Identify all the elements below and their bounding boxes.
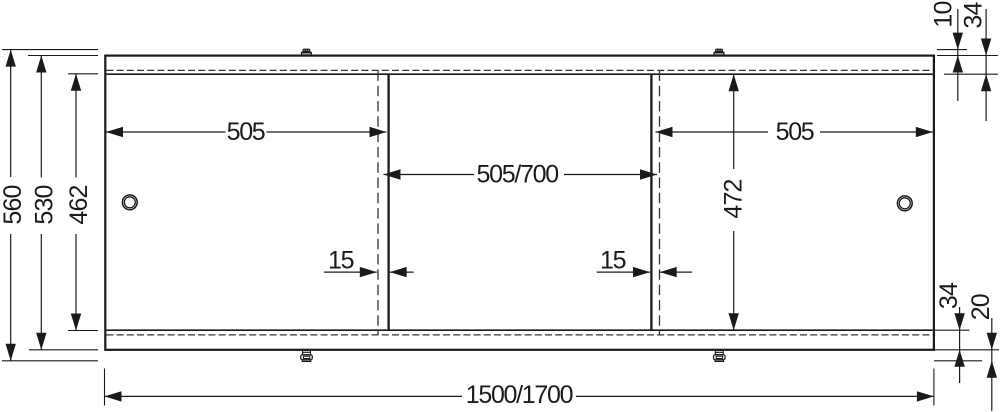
svg-text:530: 530	[30, 185, 58, 224]
svg-text:505: 505	[227, 118, 265, 146]
svg-text:472: 472	[719, 179, 747, 218]
svg-text:15: 15	[328, 247, 354, 275]
svg-text:34: 34	[935, 282, 963, 309]
svg-text:34: 34	[960, 2, 988, 29]
svg-text:10: 10	[929, 1, 957, 27]
svg-text:15: 15	[600, 247, 626, 275]
svg-text:1500/1700: 1500/1700	[466, 381, 573, 409]
svg-text:20: 20	[967, 294, 995, 320]
svg-text:462: 462	[65, 185, 93, 224]
svg-text:505: 505	[776, 118, 814, 146]
svg-text:560: 560	[0, 185, 27, 224]
svg-text:505/700: 505/700	[477, 161, 559, 189]
